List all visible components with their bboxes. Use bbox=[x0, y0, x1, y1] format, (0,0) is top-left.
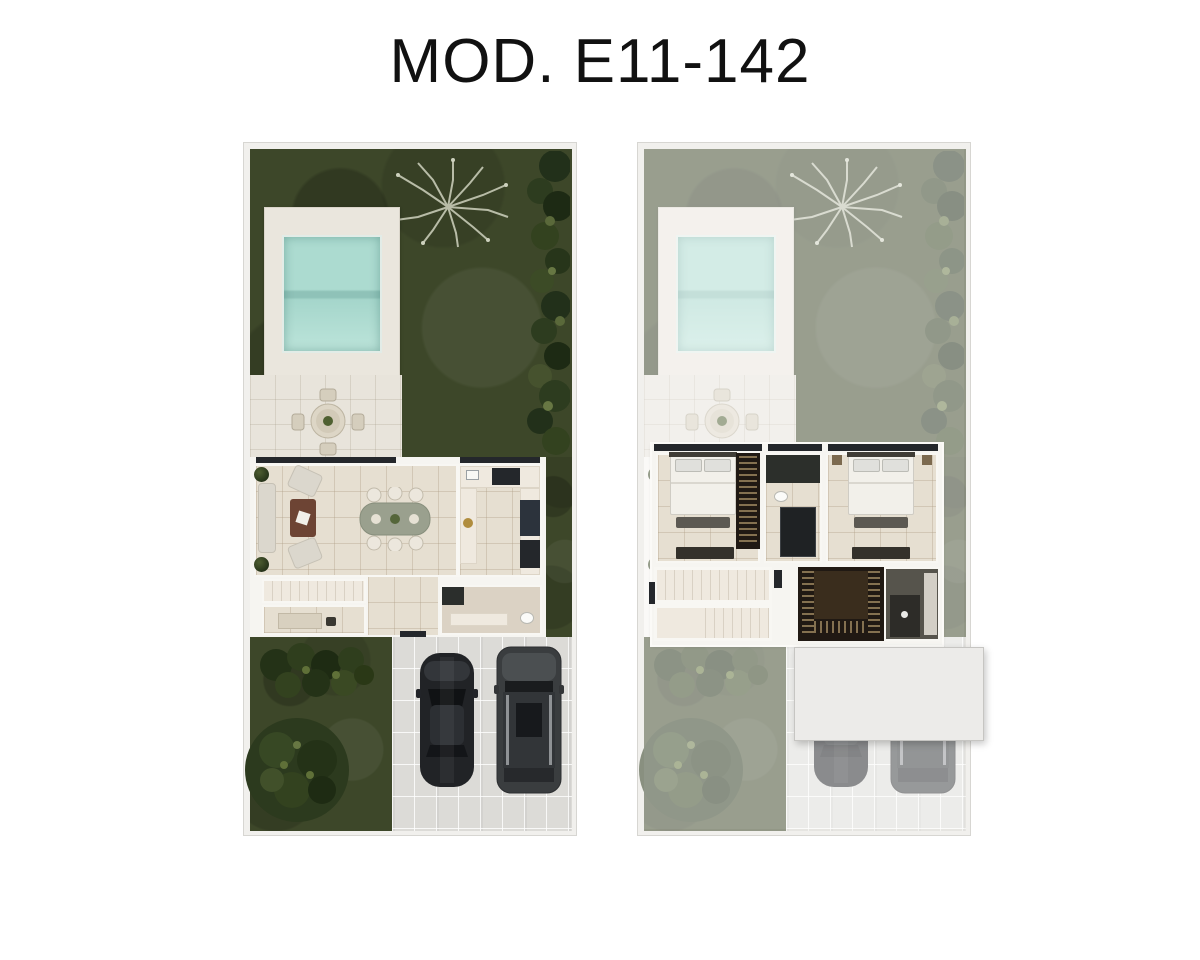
shower-head-icon bbox=[901, 611, 908, 618]
bed-bench bbox=[854, 517, 908, 528]
kitchen bbox=[458, 464, 542, 577]
closet-floor bbox=[814, 571, 868, 619]
pillow bbox=[853, 459, 880, 472]
closet-rail bbox=[868, 571, 880, 633]
hallway bbox=[368, 577, 438, 635]
stairs-ground bbox=[262, 579, 366, 603]
bowl bbox=[463, 518, 473, 528]
oven-unit bbox=[520, 540, 540, 568]
toilet bbox=[774, 491, 788, 502]
stair-treads bbox=[697, 608, 769, 638]
shower bbox=[890, 595, 920, 637]
coffee-table bbox=[290, 499, 316, 537]
car-sedan-icon bbox=[416, 651, 478, 789]
stairs-upper bbox=[654, 567, 772, 641]
dresser bbox=[852, 547, 910, 559]
window-band bbox=[256, 457, 396, 463]
stair-landing bbox=[657, 600, 769, 608]
vanity bbox=[924, 573, 937, 635]
pillow bbox=[882, 459, 909, 472]
patio-table-icon bbox=[288, 387, 368, 457]
vanity bbox=[450, 613, 508, 626]
dresser bbox=[676, 547, 734, 559]
chair bbox=[326, 617, 336, 626]
window-band bbox=[649, 582, 655, 604]
pool bbox=[282, 235, 382, 353]
page-title: MOD. E11-142 bbox=[0, 26, 1200, 97]
blanket-fold bbox=[849, 482, 913, 484]
page: MOD. E11-142 bbox=[0, 0, 1200, 960]
pillow bbox=[675, 459, 702, 472]
walk-in-closet bbox=[798, 567, 884, 641]
bathroom-ground bbox=[440, 585, 542, 635]
cabinet bbox=[278, 613, 322, 629]
cooktop bbox=[492, 468, 520, 485]
hedge-icon bbox=[500, 151, 570, 457]
headboard bbox=[847, 452, 915, 457]
bedroom-2 bbox=[826, 453, 938, 563]
ground-floor-plan bbox=[243, 142, 577, 836]
house-ground bbox=[250, 457, 546, 637]
window-band bbox=[768, 444, 822, 451]
closet-1 bbox=[736, 453, 760, 549]
bed bbox=[848, 455, 914, 515]
ground-floor-content bbox=[250, 149, 570, 829]
toilet bbox=[520, 612, 534, 624]
pillow bbox=[704, 459, 731, 472]
window-band bbox=[654, 444, 762, 451]
refrigerator bbox=[520, 500, 540, 536]
bed bbox=[670, 455, 736, 515]
utility-room bbox=[262, 605, 366, 635]
shower bbox=[442, 587, 464, 605]
upper-floor-content bbox=[644, 149, 964, 829]
tray bbox=[295, 510, 310, 525]
closet-rail bbox=[814, 621, 868, 633]
doorway bbox=[774, 570, 782, 588]
car-suv-icon bbox=[494, 645, 564, 795]
upper-floor-plan bbox=[637, 142, 971, 836]
side-lawn bbox=[546, 457, 572, 637]
sink bbox=[466, 470, 479, 480]
bed-bench bbox=[676, 517, 730, 528]
shower bbox=[780, 507, 816, 557]
bathroom-upper-2 bbox=[884, 567, 940, 641]
house-upper bbox=[652, 444, 942, 645]
closet-rail bbox=[739, 456, 757, 546]
window-band bbox=[828, 444, 938, 451]
nightstand bbox=[922, 455, 932, 465]
blanket-fold bbox=[671, 482, 735, 484]
closet-rail bbox=[802, 571, 814, 633]
vanity-dark bbox=[766, 455, 820, 483]
nightstand bbox=[832, 455, 842, 465]
tree-icon bbox=[222, 705, 372, 835]
sofa bbox=[258, 483, 276, 553]
bushes-icon bbox=[256, 635, 374, 705]
plant-icon bbox=[254, 557, 269, 572]
stair-treads bbox=[657, 570, 769, 600]
bathroom-upper-1 bbox=[764, 453, 822, 563]
roof-slab bbox=[794, 647, 984, 741]
window-band bbox=[460, 457, 540, 463]
dining-table-icon bbox=[350, 487, 440, 551]
headboard bbox=[669, 452, 737, 457]
plant-icon bbox=[254, 467, 269, 482]
